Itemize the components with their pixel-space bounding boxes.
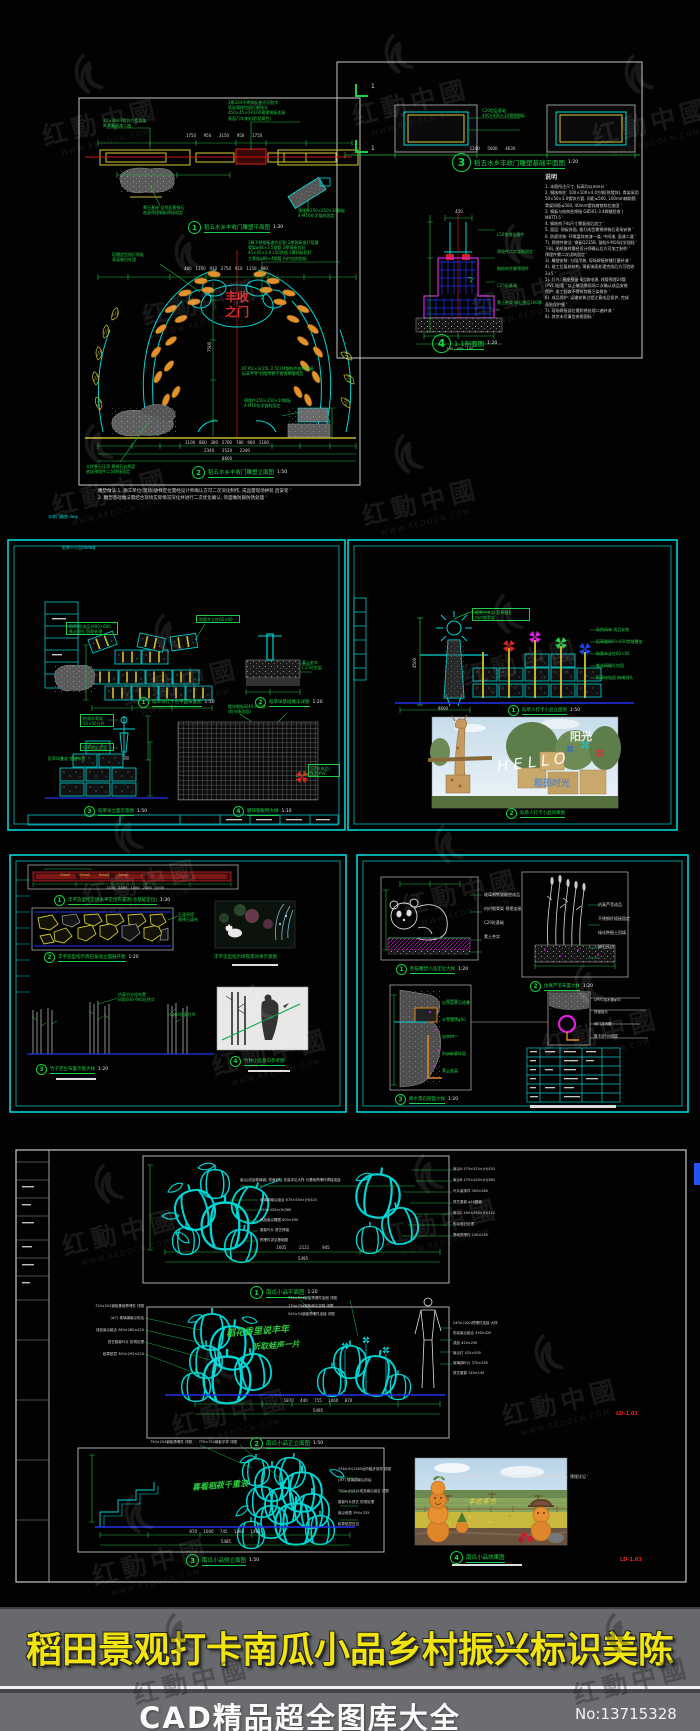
night-photo-render [215, 901, 295, 948]
screenshot-root: 30×30×3镀锌方管骨架 外罩氟碳漆二遍 3厚304不锈钢板激光切割字 背部满… [0, 0, 700, 1731]
banner-subtitle: CAD精品超全图库大全 [80, 1695, 520, 1731]
sheet3-detail-drawings [381, 872, 648, 1108]
pumpkin-photo-render [415, 1458, 567, 1545]
material-table [527, 1048, 620, 1102]
promo-banner: 红動中國 红動中國 稻田景观打卡南瓜小品乡村振兴标识美陈 CAD精品超全图库大全… [0, 1607, 700, 1731]
pumpkin-elevation-front [182, 1308, 411, 1403]
sheet4-pumpkin-drawings [78, 1156, 567, 1566]
sheet2-haybale-plan [28, 602, 338, 825]
sheet1-gate-drawing [85, 122, 358, 462]
pumpkin-elevation-side [100, 1450, 345, 1549]
sheet2-scarecrow-elevation [354, 598, 634, 808]
sheet1-foundation-drawing [345, 84, 640, 344]
sheet-frames [8, 62, 688, 1582]
edge-blue-mark [694, 1163, 700, 1185]
sheet3-sign-drawings [16, 865, 308, 1054]
bamboo-reference-panel [217, 987, 308, 1050]
banner-item-number: No:13715328 [575, 1705, 695, 1723]
pumpkin-plan-cluster [162, 1162, 421, 1265]
scale-figure [415, 1298, 441, 1388]
giraffe-photo-render [428, 715, 621, 808]
bamboo-details [27, 998, 214, 1054]
banner-title: 稻田景观打卡南瓜小品乡村振兴标识美陈 [10, 1621, 690, 1673]
cad-drawing-linework [0, 0, 700, 1731]
